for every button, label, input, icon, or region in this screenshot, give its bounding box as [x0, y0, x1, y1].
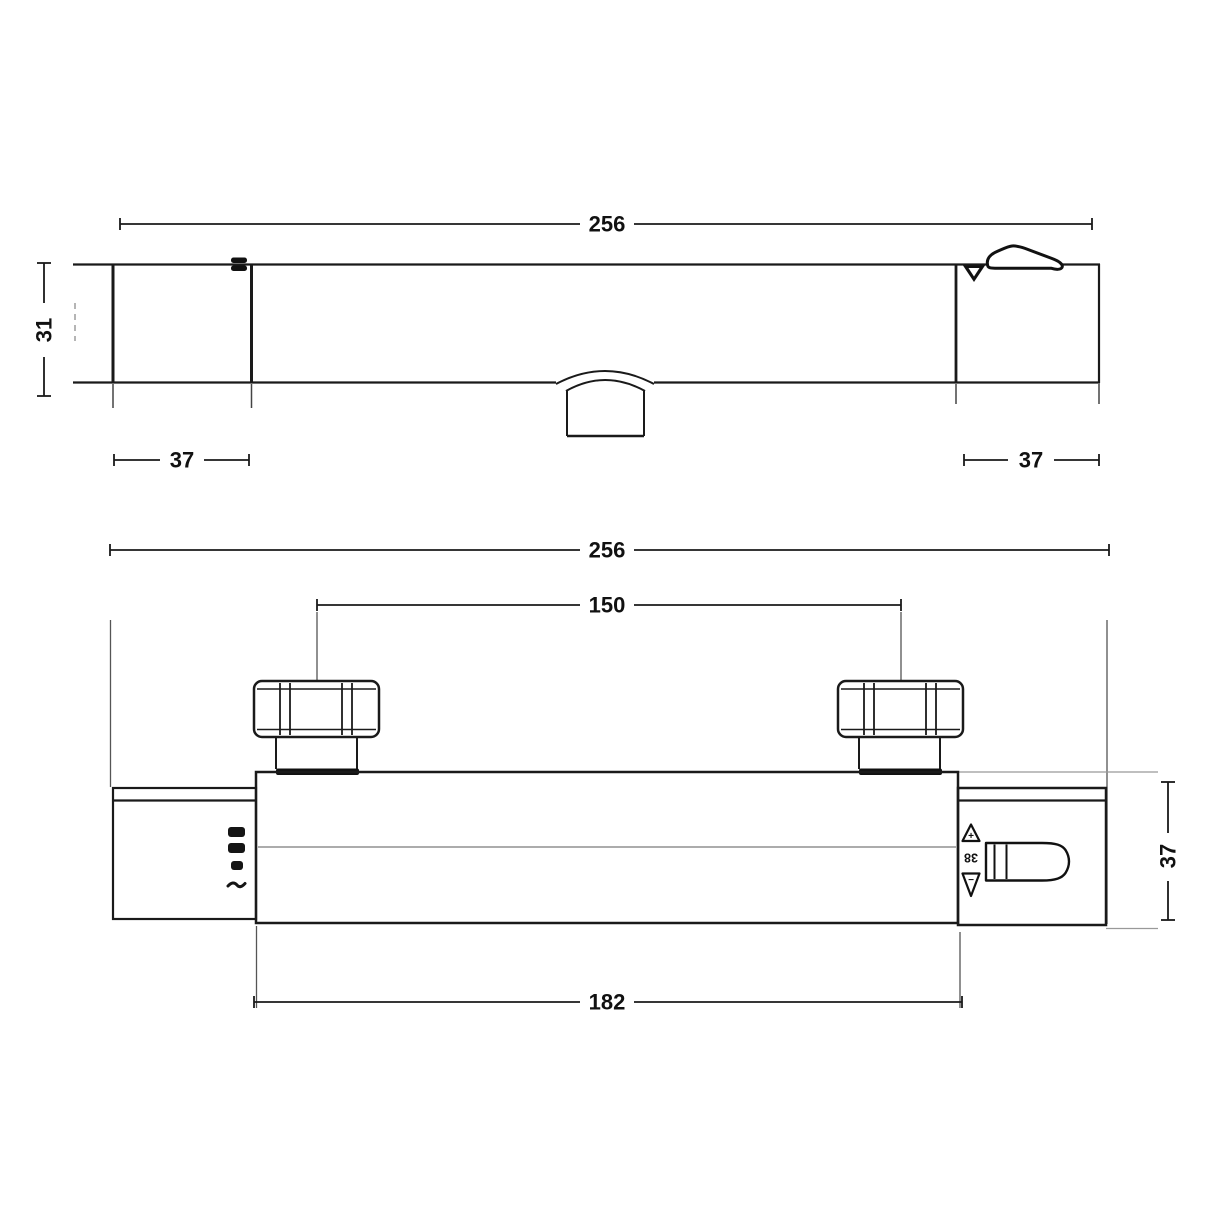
dim-label-top-right-37: 37 [1019, 448, 1043, 473]
override-slider-button [986, 843, 1069, 881]
dim-label-front-150: 150 [589, 593, 626, 618]
top-view-extension-lines [113, 384, 1099, 408]
dim-label-top-31: 31 [32, 318, 57, 342]
valve-body-front [256, 772, 958, 923]
dim-label-front-182: 182 [589, 990, 626, 1015]
dim-label-front-37: 37 [1156, 844, 1181, 868]
dim-label-front-256: 256 [589, 538, 626, 563]
left-end-cap [113, 788, 256, 919]
hotter-up-triangle-icon: + [963, 825, 980, 843]
cast-mark-front [228, 827, 245, 887]
down-triangle-marker-icon [963, 266, 985, 283]
colder-minus-label: − [968, 875, 974, 886]
dim-label-top-left-37: 37 [170, 448, 194, 473]
inlet-shanks [276, 737, 940, 769]
front-view: 256 150 [110, 538, 1181, 1015]
dim-label-top-256: 256 [589, 212, 626, 237]
colder-down-triangle-icon: − [963, 874, 980, 897]
hotter-plus-label: + [968, 831, 974, 842]
bar-outline-top [73, 264, 1100, 383]
handle-lever-icon [987, 246, 1062, 269]
outlet-boss-top [556, 371, 654, 436]
drawing-svg: 256 [0, 0, 1214, 1214]
technical-drawing-canvas: 256 [0, 0, 1214, 1214]
inlet-nut-right [838, 681, 963, 737]
temp-stop-38-label: 38 [964, 851, 978, 865]
front-view-extension-lines [111, 612, 1159, 1008]
top-view: 256 [32, 212, 1101, 473]
inlet-nut-left [254, 681, 379, 737]
